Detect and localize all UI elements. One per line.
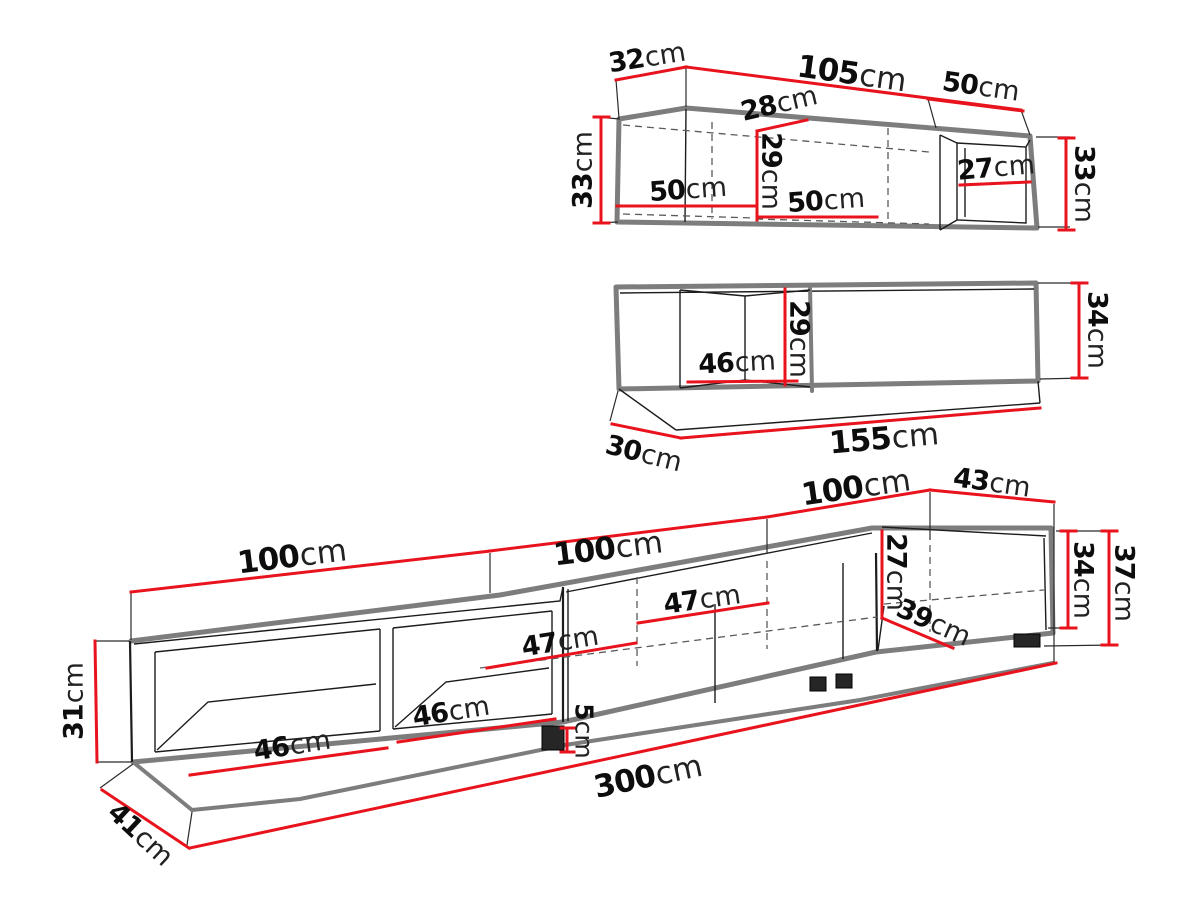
dim-stand-niche-1-width: 46cm [190,725,387,775]
diagram-canvas: 32cm 105cm 50cm 33cm 28cm 29cm 50cm [0,0,1200,900]
dim-label-top-height-right: 33cm [1069,145,1100,223]
dim-label-top-width-inner-mid: 50cm [786,183,866,219]
dim-label-top-depth-left: 32cm [606,37,688,80]
wall-cabinet-top: 32cm 105cm 50cm 33cm 28cm 29cm 50cm [567,37,1099,230]
dim-stand-depth-left: 41cm [101,790,189,873]
dim-top-height-left: 33cm [567,117,609,223]
dim-label-mid-height-right: 34cm [1082,291,1113,369]
dim-stand-width-2: 100cm [490,517,767,573]
dim-mid-depth: 30cm [602,424,685,478]
dim-label-stand-door-2-width: 47cm [661,579,742,621]
dim-stand-height-left: 31cm [58,641,97,762]
tv-stand-foot [1014,634,1040,647]
dim-label-stand-height-total: 37cm [1109,544,1140,622]
dim-stand-door-1-width: 47cm [487,621,636,668]
tv-stand-feet [542,634,1040,750]
dim-label-stand-width-3: 100cm [799,462,913,513]
furniture-dimension-diagram: 32cm 105cm 50cm 33cm 28cm 29cm 50cm [0,0,1200,900]
dim-stand-foot-height: 5cm [561,703,598,759]
dim-mid-height-niche: 29cm [784,289,815,385]
dim-label-stand-door-1-width: 47cm [519,621,601,664]
dim-label-top-height-inner: 29cm [756,132,787,210]
dim-label-top-width-inner-left: 50cm [648,172,728,208]
dim-top-height-inner: 29cm [756,131,787,220]
dim-stand-height-total: 37cm [1102,531,1140,645]
dim-label-stand-niche-2-width: 46cm [410,691,492,734]
dim-label-mid-width-niche: 46cm [697,345,776,380]
dim-label-stand-niche-1-width: 46cm [251,725,333,768]
dim-label-mid-height-niche: 29cm [784,300,815,378]
dim-top-depth-left: 32cm [606,37,688,80]
dim-stand-width-1: 100cm [131,532,490,592]
tv-stand-foot [810,677,826,691]
dim-top-height-right: 33cm [1059,138,1100,230]
dim-mid-height-right: 34cm [1072,283,1113,378]
dim-label-stand-width-1: 100cm [235,532,349,581]
dim-stand-width-3: 100cm [767,462,930,517]
dim-label-stand-width-total: 300cm [591,748,706,806]
dim-stand-depth-top: 43cm [930,462,1054,504]
dim-label-stand-depth-top: 43cm [951,462,1032,504]
dim-stand-height-body: 34cm [1061,531,1099,628]
dim-label-stand-height-left: 31cm [58,662,89,740]
dim-stand-door-2-width: 47cm [638,579,768,623]
dim-label-top-height-left: 33cm [567,131,598,209]
dim-top-width-inner-right: 27cm [956,149,1036,187]
tv-stand: 100cm 100cm 100cm 43cm 31cm 46cm 46cm 4 [58,462,1139,872]
dim-label-stand-foot-height: 5cm [569,703,598,759]
dim-top-width-right: 50cm [928,66,1023,111]
tv-stand-foot [542,726,564,750]
wall-cabinet-mid: 46cm 29cm 34cm 30cm 155cm [602,283,1112,478]
tv-stand-foot [836,674,852,688]
dim-label-stand-height-body: 34cm [1068,541,1099,619]
